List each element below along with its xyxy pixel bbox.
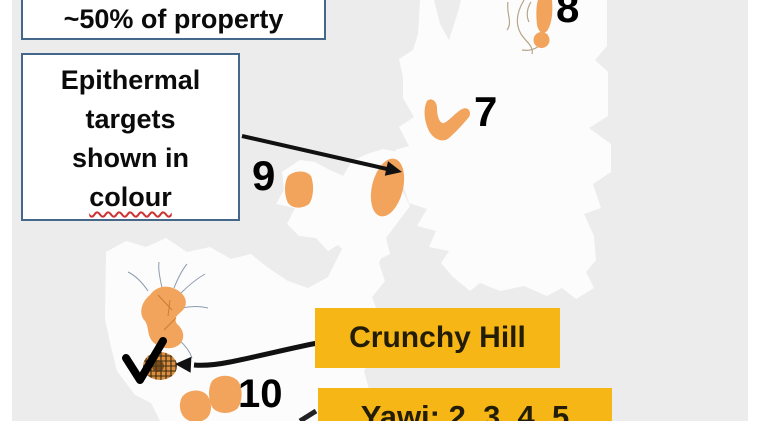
target-9-shape [285, 172, 313, 208]
epithermal-note-line2: targets [85, 100, 175, 139]
yawi-text: Yawi: 2, 3, 4, 5 [361, 399, 570, 421]
target-label-9: 9 [252, 155, 275, 197]
property-coverage-text: ~50% of property [64, 4, 284, 35]
crunchy-hill-text: Crunchy Hill [349, 321, 526, 355]
yawi-label: Yawi: 2, 3, 4, 5 [318, 388, 612, 421]
epithermal-note-line4: colour [89, 178, 172, 217]
slide-map-view: ~50% of property Epithermal targets show… [0, 0, 763, 421]
target-label-8: 8 [556, 0, 579, 29]
epithermal-note-line3: shown in [72, 139, 189, 178]
property-coverage-note: ~50% of property [21, 0, 326, 40]
target-label-7: 7 [474, 91, 497, 133]
epithermal-note-line1: Epithermal [61, 61, 201, 100]
property-outline-north [395, 0, 611, 299]
crunchy-hill-label: Crunchy Hill [315, 308, 560, 368]
epithermal-note: Epithermal targets shown in colour [21, 53, 240, 221]
target-label-10: 10 [238, 374, 283, 414]
